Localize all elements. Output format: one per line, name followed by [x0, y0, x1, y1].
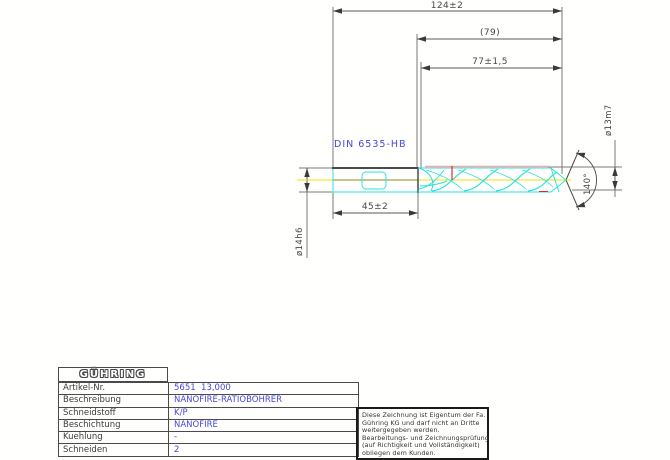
table-row: Beschichtung NANOFIRE [59, 420, 358, 432]
dim-cutting-diameter: ø13m7 [604, 104, 614, 136]
marking-lines [425, 166, 551, 192]
row-value: K/P [169, 408, 358, 419]
dim-ref-length: (79) [480, 28, 500, 38]
dimension-lines [307, 11, 615, 213]
row-value: NANOFIRE-RATIOBOHRER [169, 395, 358, 406]
spec-table: GÜHRING Artikel-Nr. 5651 13,000 Beschrei… [58, 367, 359, 457]
extension-lines [299, 7, 622, 258]
spec-rows: Artikel-Nr. 5651 13,000 Beschreibung NAN… [58, 382, 359, 457]
table-row: Artikel-Nr. 5651 13,000 [59, 383, 358, 395]
row-label: Artikel-Nr. [59, 383, 169, 394]
dim-overall-length: 124±2 [431, 1, 463, 11]
dim-point-angle: 140° [583, 173, 593, 195]
table-row: Kuehlung - [59, 432, 358, 444]
manufacturer-logo-box: GÜHRING [58, 367, 168, 382]
row-label: Schneidstoff [59, 408, 169, 419]
drawing-sheet: 124±2 (79) 77±1,5 45±2 DIN 6535-HB ø14h6… [0, 0, 670, 460]
dim-shank-diameter: ø14h6 [295, 227, 305, 256]
dim-flute-length: 77±1,5 [472, 57, 508, 67]
row-value: - [169, 432, 358, 443]
row-label: Beschichtung [59, 420, 169, 431]
disclaimer-line: obliegen dem Kunden. [362, 450, 484, 458]
dim-shank-length: 45±2 [362, 202, 388, 212]
table-row: Schneiden 2 [59, 444, 358, 455]
table-row: Beschreibung NANOFIRE-RATIOBOHRER [59, 395, 358, 407]
row-value: 5651 13,000 [169, 383, 358, 394]
disclaimer-box: Diese Zeichnung ist Eigentum der Fa. Güh… [356, 407, 489, 460]
row-value: NANOFIRE [169, 420, 358, 431]
shank-standard-label: DIN 6535-HB [334, 139, 407, 150]
row-label: Schneiden [59, 444, 169, 455]
table-row: Schneidstoff K/P [59, 408, 358, 420]
row-value: 2 [169, 445, 358, 456]
manufacturer-logo: GÜHRING [80, 369, 147, 380]
row-label: Beschreibung [59, 395, 169, 406]
row-label: Kuehlung [59, 432, 169, 443]
